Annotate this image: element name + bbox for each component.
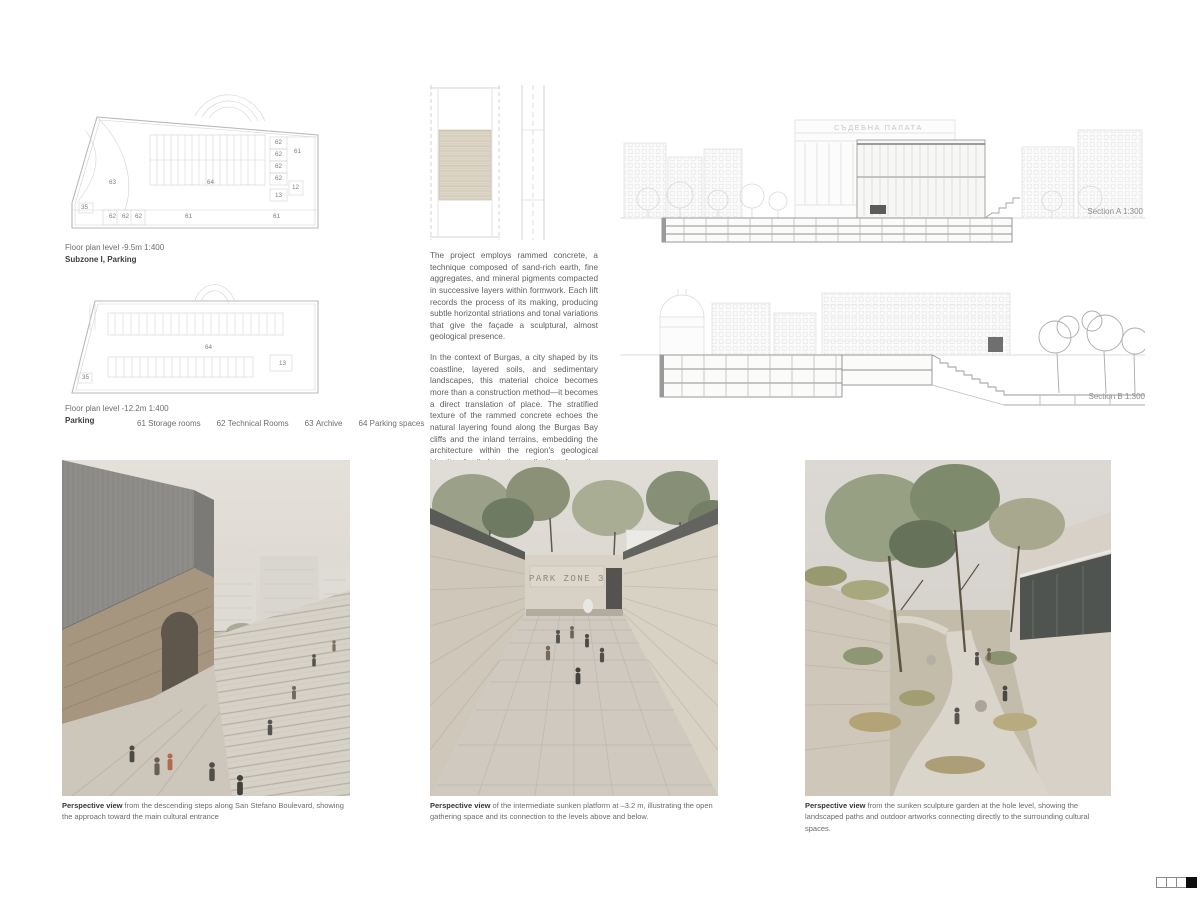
legend-item: 62 Technical Rooms [217, 419, 289, 428]
section-b-label: Section B 1:300 [1045, 392, 1145, 401]
plan-legend: 61 Storage rooms 62 Technical Rooms 63 A… [137, 419, 424, 428]
room-number: 13 [279, 361, 286, 367]
plan2-caption-name: Parking [65, 416, 94, 425]
caption-lead: Perspective view [430, 801, 490, 810]
room-number: 62 [275, 152, 282, 158]
courthouse-sign: СЪДЕБНА ПАЛАТА [834, 123, 923, 132]
section-accent-volume [988, 337, 1003, 352]
room-number: 63 [109, 180, 116, 186]
room-number: 64 [207, 180, 214, 186]
room-number: 13 [275, 193, 282, 199]
room-number: 64 [205, 345, 212, 351]
section-cut-building [857, 140, 985, 218]
render-caption-2: Perspective view of the intermediate sun… [430, 800, 722, 823]
room-number: 62 [275, 140, 282, 146]
room-number: 61 [294, 149, 301, 155]
plan1-caption: Floor plan level -9.5m 1:400 Subzone I, … [65, 242, 164, 266]
domed-building [660, 289, 704, 355]
room-number: 62 [135, 214, 142, 220]
presentation-board: 62 62 62 62 61 12 13 63 64 35 62 62 62 6… [0, 0, 1200, 900]
reflecting-pool [526, 609, 623, 616]
section-a-drawing: СЪДЕБНА ПАЛАТА [620, 85, 1145, 245]
room-number: 61 [273, 214, 280, 220]
doorway [606, 568, 622, 615]
rammed-concrete-detail-drawing [430, 85, 550, 240]
legend-item: 64 Parking spaces [359, 419, 425, 428]
park-zone-sign: PARK ZONE 3 [529, 574, 605, 584]
floor-plan-parking: 64 13 35 [70, 275, 320, 401]
floor-plan-parking-drawing [70, 275, 320, 401]
plan2-caption-scale: Floor plan level -12.2m 1:400 [65, 403, 169, 415]
render-image-steps [62, 460, 350, 796]
section-a-label: Section A 1:300 [1043, 207, 1143, 216]
room-number: 62 [275, 164, 282, 170]
section-b-drawing [620, 275, 1145, 435]
room-number: 62 [122, 214, 129, 220]
sheet-indicator-square-4-active[interactable] [1186, 877, 1197, 888]
render-image-sculpture-garden [805, 460, 1111, 796]
caption-lead: Perspective view [805, 801, 865, 810]
room-number: 61 [185, 214, 192, 220]
legend-item: 63 Archive [305, 419, 343, 428]
trees [1039, 311, 1145, 393]
rammed-earth-band [439, 130, 491, 200]
room-number: 35 [82, 375, 89, 381]
plan1-caption-scale: Floor plan level -9.5m 1:400 [65, 242, 164, 254]
render-caption-3: Perspective view from the sunken sculptu… [805, 800, 1111, 834]
plan1-caption-name: Subzone I, Parking [65, 255, 137, 264]
floor-plan-subzone: 62 62 62 62 61 12 13 63 64 35 62 62 62 6… [65, 85, 320, 243]
left-building-side [194, 490, 214, 578]
render-image-sunken-platform: PARK ZONE 3 [430, 460, 718, 796]
material-paragraph-1: The project employs rammed concrete, a t… [430, 250, 598, 343]
sheet-indicator [1157, 877, 1197, 888]
room-number: 35 [81, 205, 88, 211]
sculpture [583, 599, 593, 613]
room-number: 62 [275, 176, 282, 182]
legend-item: 61 Storage rooms [137, 419, 201, 428]
room-number: 12 [292, 185, 299, 191]
caption-lead: Perspective view [62, 801, 122, 810]
render-caption-1: Perspective view from the descending ste… [62, 800, 354, 823]
room-number: 62 [109, 214, 116, 220]
